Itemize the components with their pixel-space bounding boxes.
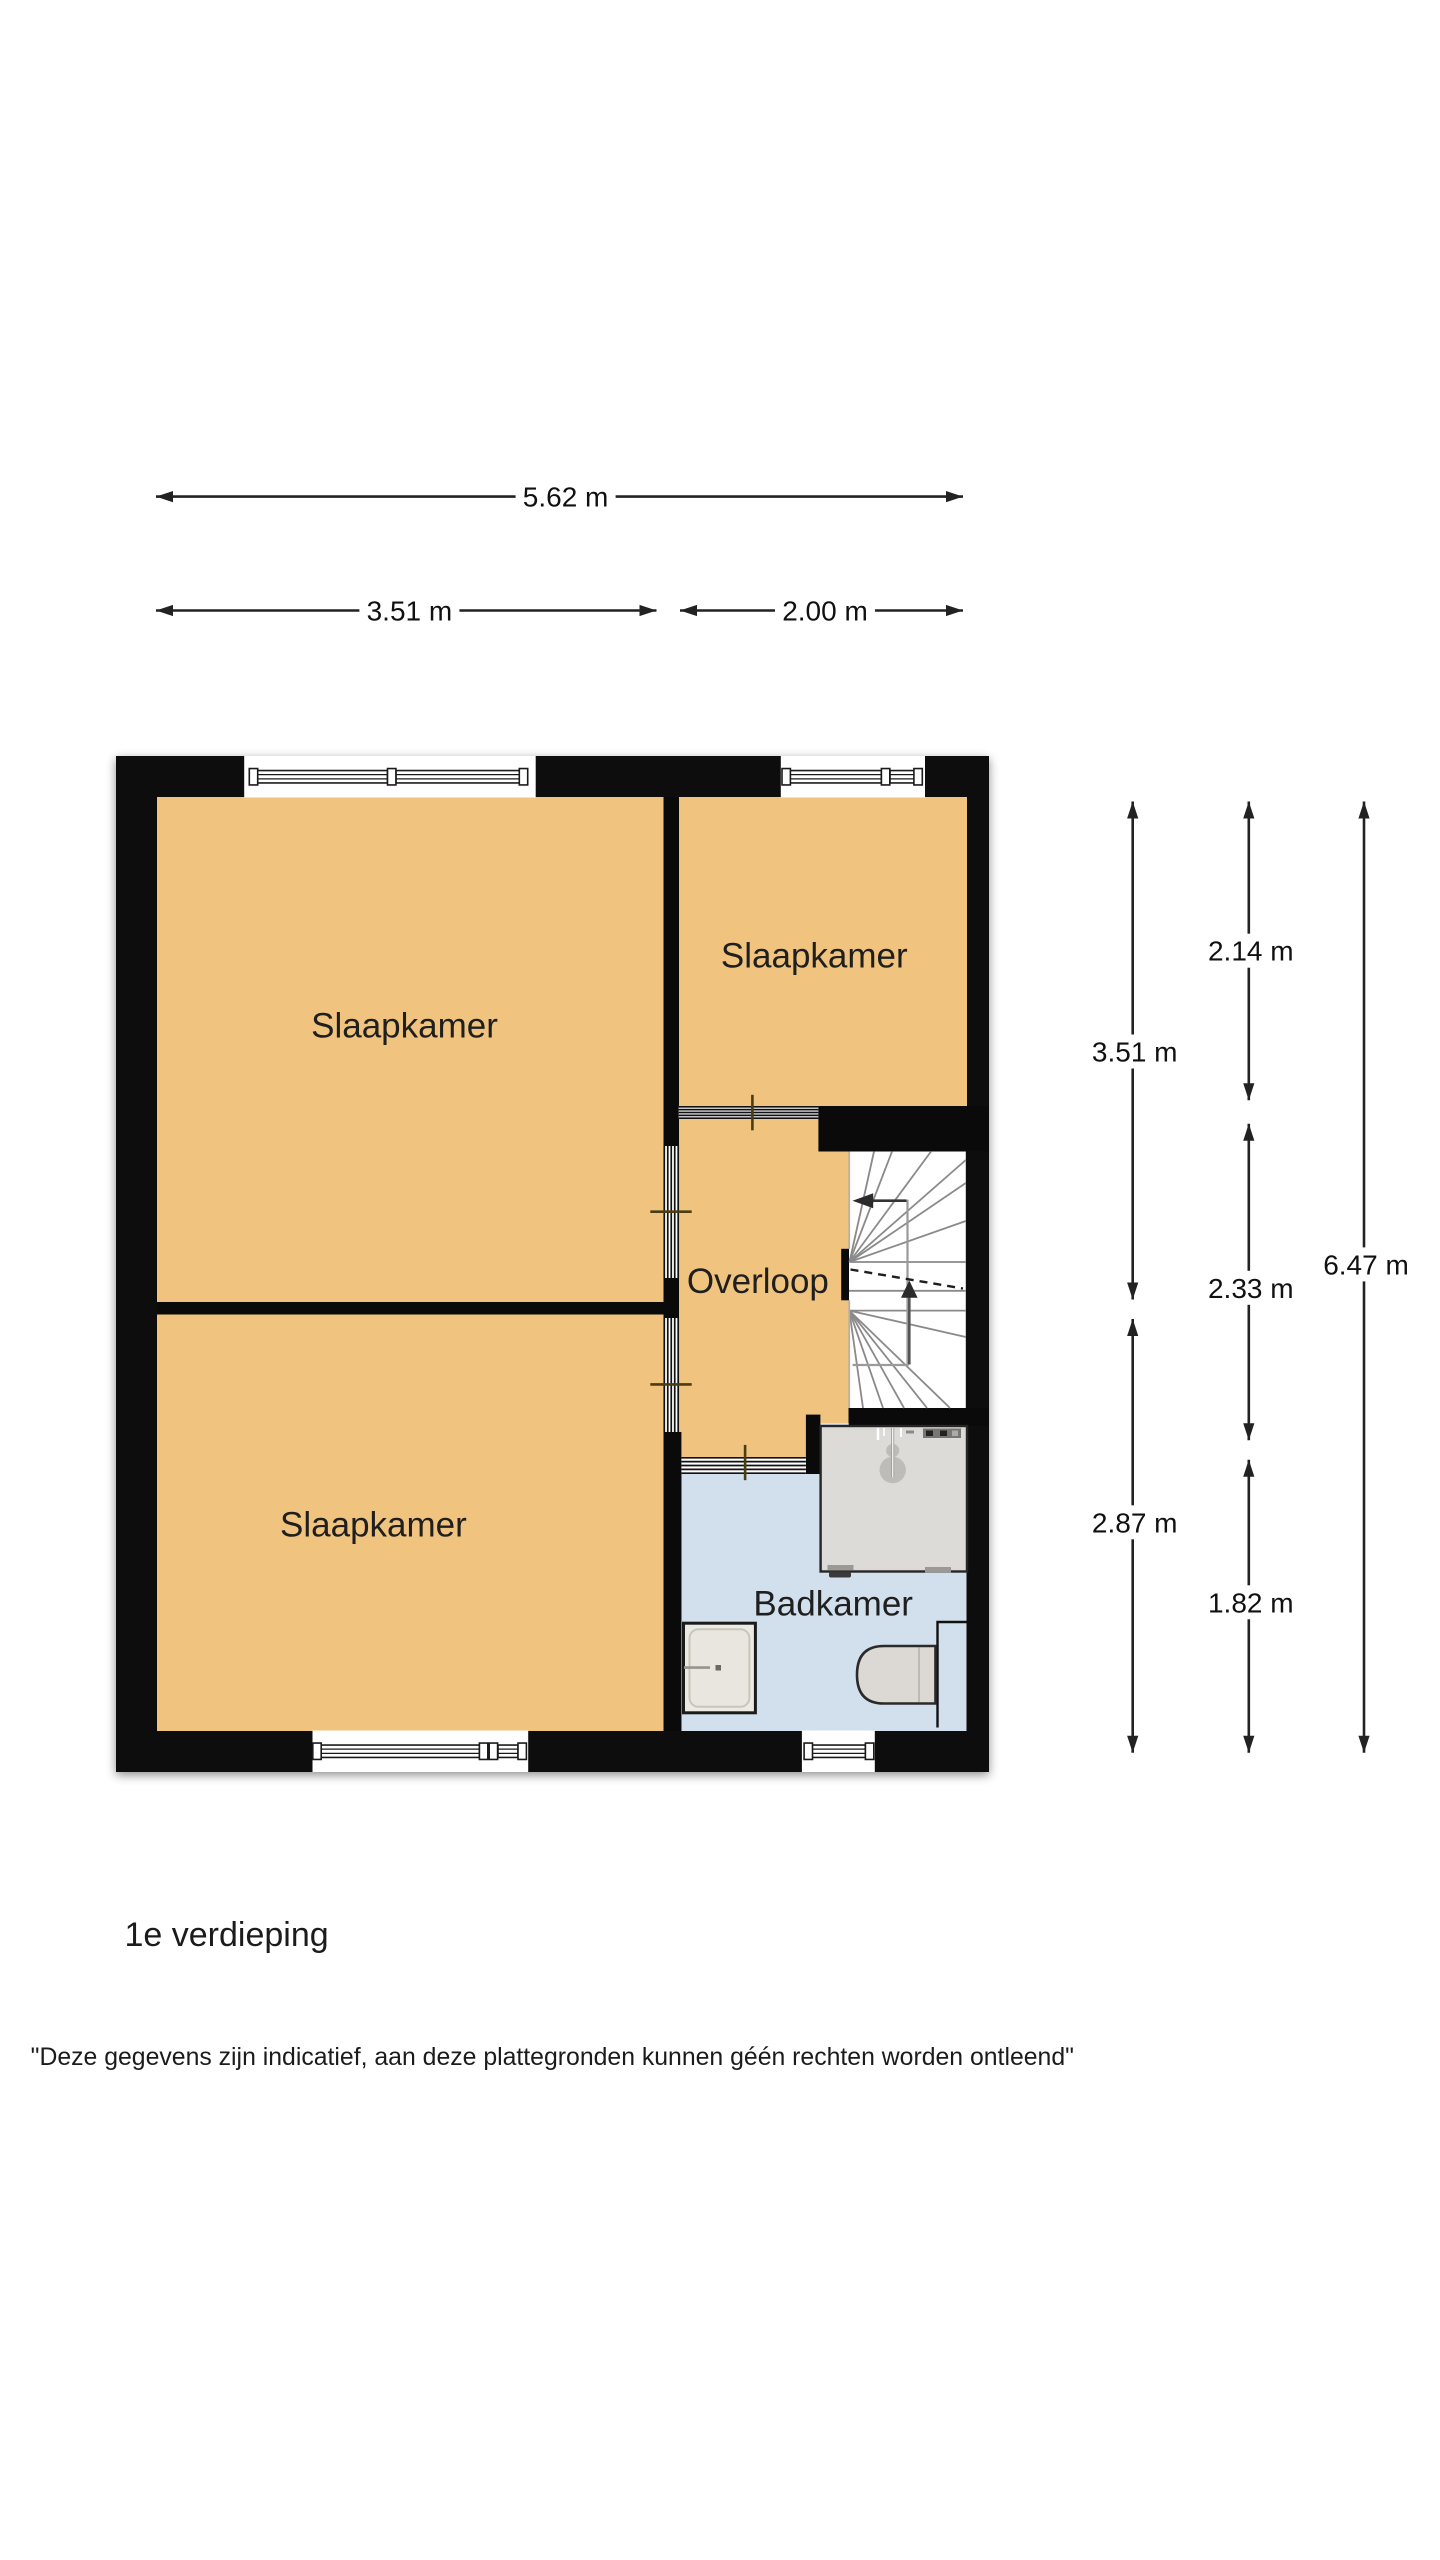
svg-text:Slaapkamer: Slaapkamer <box>721 937 908 976</box>
svg-text:2.87 m: 2.87 m <box>1092 1507 1178 1538</box>
svg-text:3.51 m: 3.51 m <box>367 596 453 627</box>
svg-text:3.51 m: 3.51 m <box>1092 1037 1178 1068</box>
svg-text:Overloop: Overloop <box>687 1262 829 1301</box>
svg-text:Slaapkamer: Slaapkamer <box>311 1007 498 1046</box>
svg-text:2.14 m: 2.14 m <box>1208 936 1294 967</box>
svg-text:Slaapkamer: Slaapkamer <box>280 1506 467 1545</box>
svg-text:1e verdieping: 1e verdieping <box>125 1916 329 1954</box>
svg-text:2.00 m: 2.00 m <box>782 596 868 627</box>
svg-text:"Deze gegevens zijn indicatief: "Deze gegevens zijn indicatief, aan deze… <box>31 2044 1074 2071</box>
svg-text:6.47 m: 6.47 m <box>1323 1249 1409 1280</box>
svg-text:5.62 m: 5.62 m <box>523 482 609 513</box>
svg-text:2.33 m: 2.33 m <box>1208 1273 1294 1304</box>
svg-text:Badkamer: Badkamer <box>753 1585 913 1624</box>
svg-text:1.82 m: 1.82 m <box>1208 1587 1294 1618</box>
